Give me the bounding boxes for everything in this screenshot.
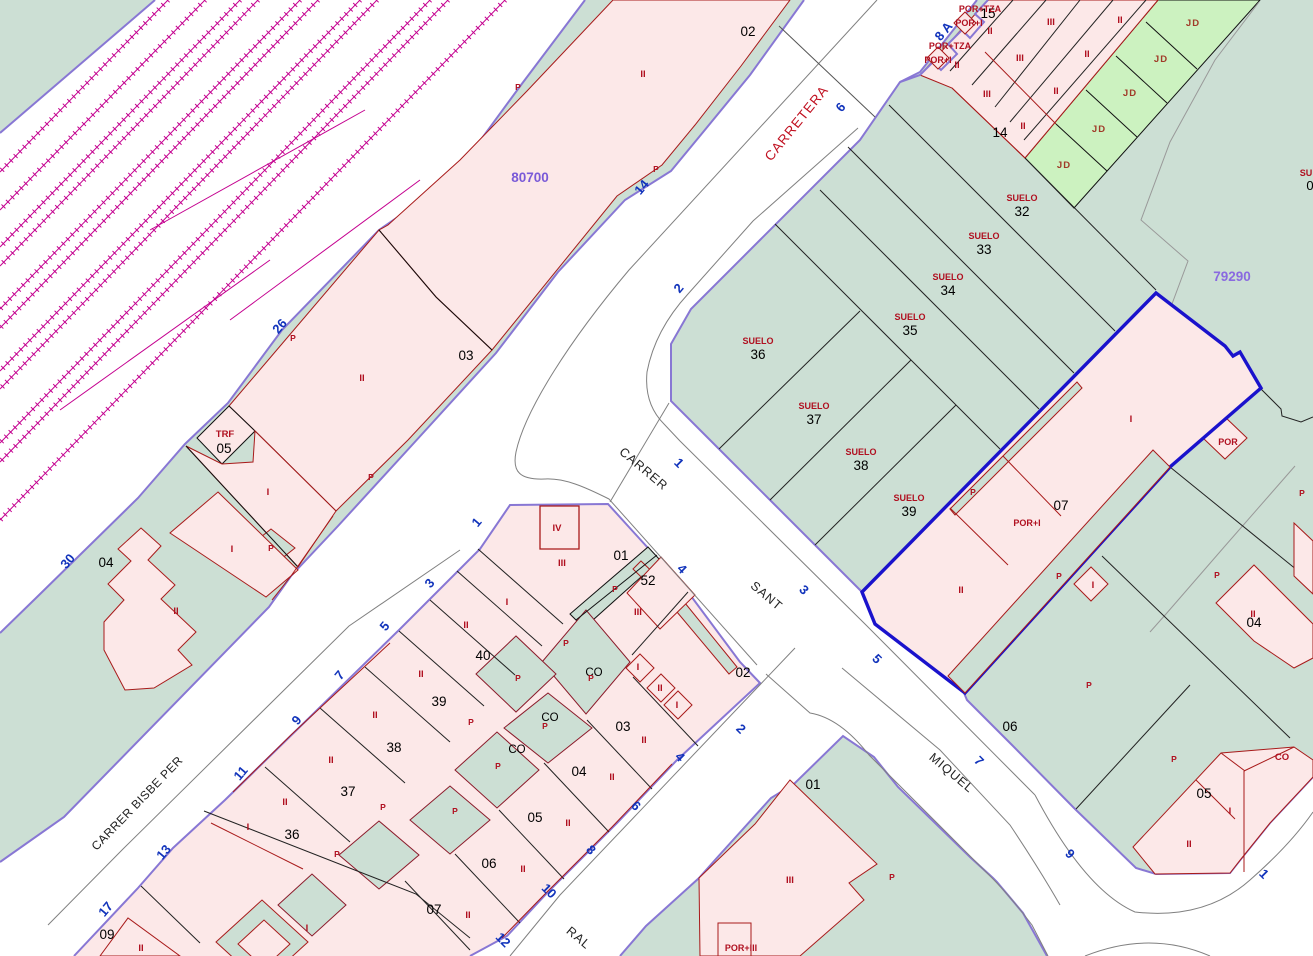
svg-text:32: 32 <box>1014 204 1029 219</box>
svg-text:04: 04 <box>98 555 114 570</box>
svg-text:SUELO: SUELO <box>742 336 773 346</box>
svg-text:JD: JD <box>1123 88 1137 99</box>
svg-text:SUELO: SUELO <box>798 401 829 411</box>
svg-text:II: II <box>372 710 377 721</box>
svg-text:P: P <box>380 802 386 812</box>
svg-text:II: II <box>640 69 645 80</box>
svg-text:P: P <box>889 872 895 882</box>
svg-text:P: P <box>452 806 458 816</box>
svg-text:I: I <box>676 700 679 711</box>
svg-text:POR+I: POR+I <box>1013 518 1040 528</box>
svg-text:II: II <box>987 26 992 37</box>
svg-text:II: II <box>1250 609 1255 620</box>
svg-text:POR+TZA: POR+TZA <box>929 41 972 51</box>
svg-text:P: P <box>515 673 521 683</box>
svg-text:SUELO: SUELO <box>1006 193 1037 203</box>
svg-text:III: III <box>786 875 794 886</box>
svg-text:II: II <box>1053 86 1058 97</box>
svg-text:III: III <box>983 89 991 100</box>
svg-text:JD: JD <box>1154 54 1168 65</box>
svg-text:I: I <box>637 662 640 673</box>
svg-text:06: 06 <box>481 856 496 871</box>
svg-text:POR+III: POR+III <box>725 943 757 953</box>
svg-text:39: 39 <box>901 504 916 519</box>
svg-text:II: II <box>1186 839 1191 850</box>
svg-text:POR: POR <box>1218 437 1238 447</box>
svg-text:03: 03 <box>615 719 630 734</box>
svg-text:II: II <box>657 683 662 694</box>
svg-text:P: P <box>368 472 374 482</box>
svg-text:P: P <box>515 82 521 92</box>
svg-text:14: 14 <box>992 125 1008 140</box>
svg-text:02: 02 <box>735 665 750 680</box>
svg-text:P: P <box>653 164 659 174</box>
svg-text:II: II <box>609 772 614 783</box>
svg-text:02: 02 <box>740 24 755 39</box>
svg-text:JD: JD <box>1092 124 1106 135</box>
svg-text:04: 04 <box>571 764 587 779</box>
svg-text:01: 01 <box>613 548 628 563</box>
svg-text:06: 06 <box>1002 719 1017 734</box>
svg-text:35: 35 <box>902 323 917 338</box>
svg-text:CO: CO <box>508 744 525 756</box>
svg-text:IV: IV <box>553 523 563 534</box>
svg-text:01: 01 <box>805 777 820 792</box>
svg-text:II: II <box>463 620 468 631</box>
svg-text:P: P <box>1086 680 1092 690</box>
svg-text:P: P <box>970 487 976 497</box>
svg-text:II: II <box>418 669 423 680</box>
svg-text:III: III <box>1047 17 1055 28</box>
svg-text:P: P <box>1214 570 1220 580</box>
svg-text:34: 34 <box>940 283 956 298</box>
svg-text:II: II <box>465 910 470 921</box>
svg-text:79290: 79290 <box>1213 269 1251 284</box>
svg-text:I: I <box>247 822 250 833</box>
svg-text:37: 37 <box>806 412 821 427</box>
svg-text:II: II <box>641 735 646 746</box>
svg-text:II: II <box>954 60 959 71</box>
svg-text:SUELO: SUELO <box>968 231 999 241</box>
svg-text:P: P <box>542 721 548 731</box>
svg-text:0: 0 <box>1306 178 1313 193</box>
svg-text:I: I <box>1229 806 1232 817</box>
svg-text:POR+I: POR+I <box>924 55 951 65</box>
svg-text:TRF: TRF <box>216 429 235 440</box>
svg-text:SUELO: SUELO <box>845 447 876 457</box>
svg-text:P: P <box>268 543 274 553</box>
svg-text:33: 33 <box>976 242 991 257</box>
svg-text:II: II <box>138 943 143 954</box>
svg-text:II: II <box>359 373 364 384</box>
svg-text:I: I <box>306 923 309 934</box>
svg-text:SUELO: SUELO <box>893 493 924 503</box>
svg-text:52: 52 <box>640 573 655 588</box>
svg-text:38: 38 <box>386 740 401 755</box>
svg-text:II: II <box>1117 15 1122 26</box>
svg-text:05: 05 <box>216 441 231 456</box>
svg-text:III: III <box>634 607 642 618</box>
svg-text:P: P <box>563 638 569 648</box>
svg-text:07: 07 <box>426 902 441 917</box>
svg-text:III: III <box>558 558 566 569</box>
svg-text:I: I <box>1130 414 1133 425</box>
svg-text:II: II <box>1020 121 1025 132</box>
svg-text:P: P <box>1056 571 1062 581</box>
svg-text:POR+TZA: POR+TZA <box>959 4 1002 14</box>
svg-text:37: 37 <box>340 784 355 799</box>
svg-text:38: 38 <box>853 458 868 473</box>
svg-text:P: P <box>1299 488 1305 498</box>
svg-text:II: II <box>520 864 525 875</box>
svg-text:II: II <box>282 797 287 808</box>
svg-text:I: I <box>1092 580 1095 591</box>
svg-text:09: 09 <box>99 927 114 942</box>
svg-text:36: 36 <box>284 827 299 842</box>
svg-text:III: III <box>1016 53 1024 64</box>
svg-text:P: P <box>334 849 340 859</box>
svg-text:II: II <box>328 755 333 766</box>
svg-text:CO: CO <box>1275 752 1289 763</box>
svg-text:II: II <box>1084 49 1089 60</box>
svg-text:P: P <box>495 761 501 771</box>
svg-text:36: 36 <box>750 347 765 362</box>
svg-text:P: P <box>612 584 618 594</box>
svg-text:80700: 80700 <box>511 170 549 185</box>
svg-text:JD: JD <box>1057 160 1071 171</box>
svg-text:II: II <box>565 818 570 829</box>
svg-text:40: 40 <box>475 648 490 663</box>
svg-text:JD: JD <box>1186 18 1200 29</box>
svg-text:P: P <box>468 717 474 727</box>
svg-text:05: 05 <box>527 810 542 825</box>
svg-text:I: I <box>506 597 509 608</box>
svg-text:03: 03 <box>458 348 473 363</box>
svg-text:II: II <box>958 585 963 596</box>
svg-text:SUELO: SUELO <box>894 312 925 322</box>
svg-text:SUELO: SUELO <box>932 272 963 282</box>
svg-text:P: P <box>290 333 296 343</box>
svg-text:P: P <box>588 673 594 683</box>
svg-text:I: I <box>231 544 234 555</box>
svg-text:07: 07 <box>1053 498 1068 513</box>
svg-text:I: I <box>267 487 270 498</box>
svg-text:SU: SU <box>1300 168 1313 178</box>
svg-text:05: 05 <box>1196 786 1211 801</box>
svg-text:P: P <box>1171 754 1177 764</box>
svg-text:39: 39 <box>431 694 446 709</box>
svg-text:POR+I: POR+I <box>955 18 982 28</box>
svg-text:II: II <box>173 606 178 617</box>
